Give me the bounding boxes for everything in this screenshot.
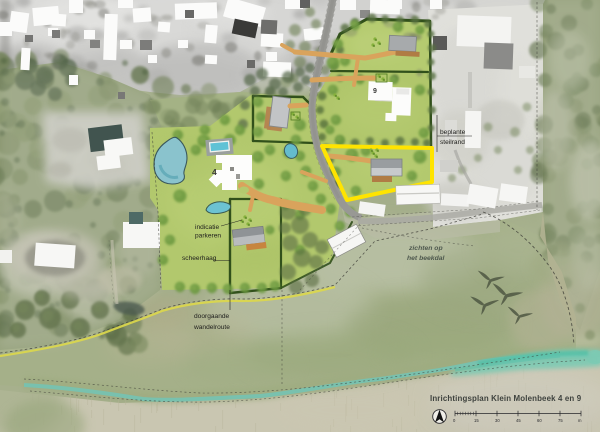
svg-text:zichten op: zichten op xyxy=(408,245,443,252)
svg-text:Inrichtingsplan Klein Molenbee: Inrichtingsplan Klein Molenbeek 4 en 9 xyxy=(430,394,582,403)
svg-text:parkeren: parkeren xyxy=(195,233,221,240)
svg-text:wandelroute: wandelroute xyxy=(193,324,230,331)
svg-text:60: 60 xyxy=(537,418,542,423)
svg-text:9: 9 xyxy=(373,88,377,95)
svg-text:beplante: beplante xyxy=(440,129,466,136)
svg-text:15: 15 xyxy=(474,418,479,423)
svg-text:indicatie: indicatie xyxy=(195,224,220,231)
svg-text:scheerhaag: scheerhaag xyxy=(182,255,217,262)
svg-text:4: 4 xyxy=(212,167,217,177)
svg-text:30: 30 xyxy=(495,418,500,423)
svg-text:doorgaande: doorgaande xyxy=(194,313,230,320)
svg-text:steilrand: steilrand xyxy=(440,139,465,146)
svg-text:75: 75 xyxy=(558,418,563,423)
svg-text:45: 45 xyxy=(516,418,521,423)
svg-text:het beekdal: het beekdal xyxy=(407,255,445,262)
svg-text:m: m xyxy=(578,418,582,423)
